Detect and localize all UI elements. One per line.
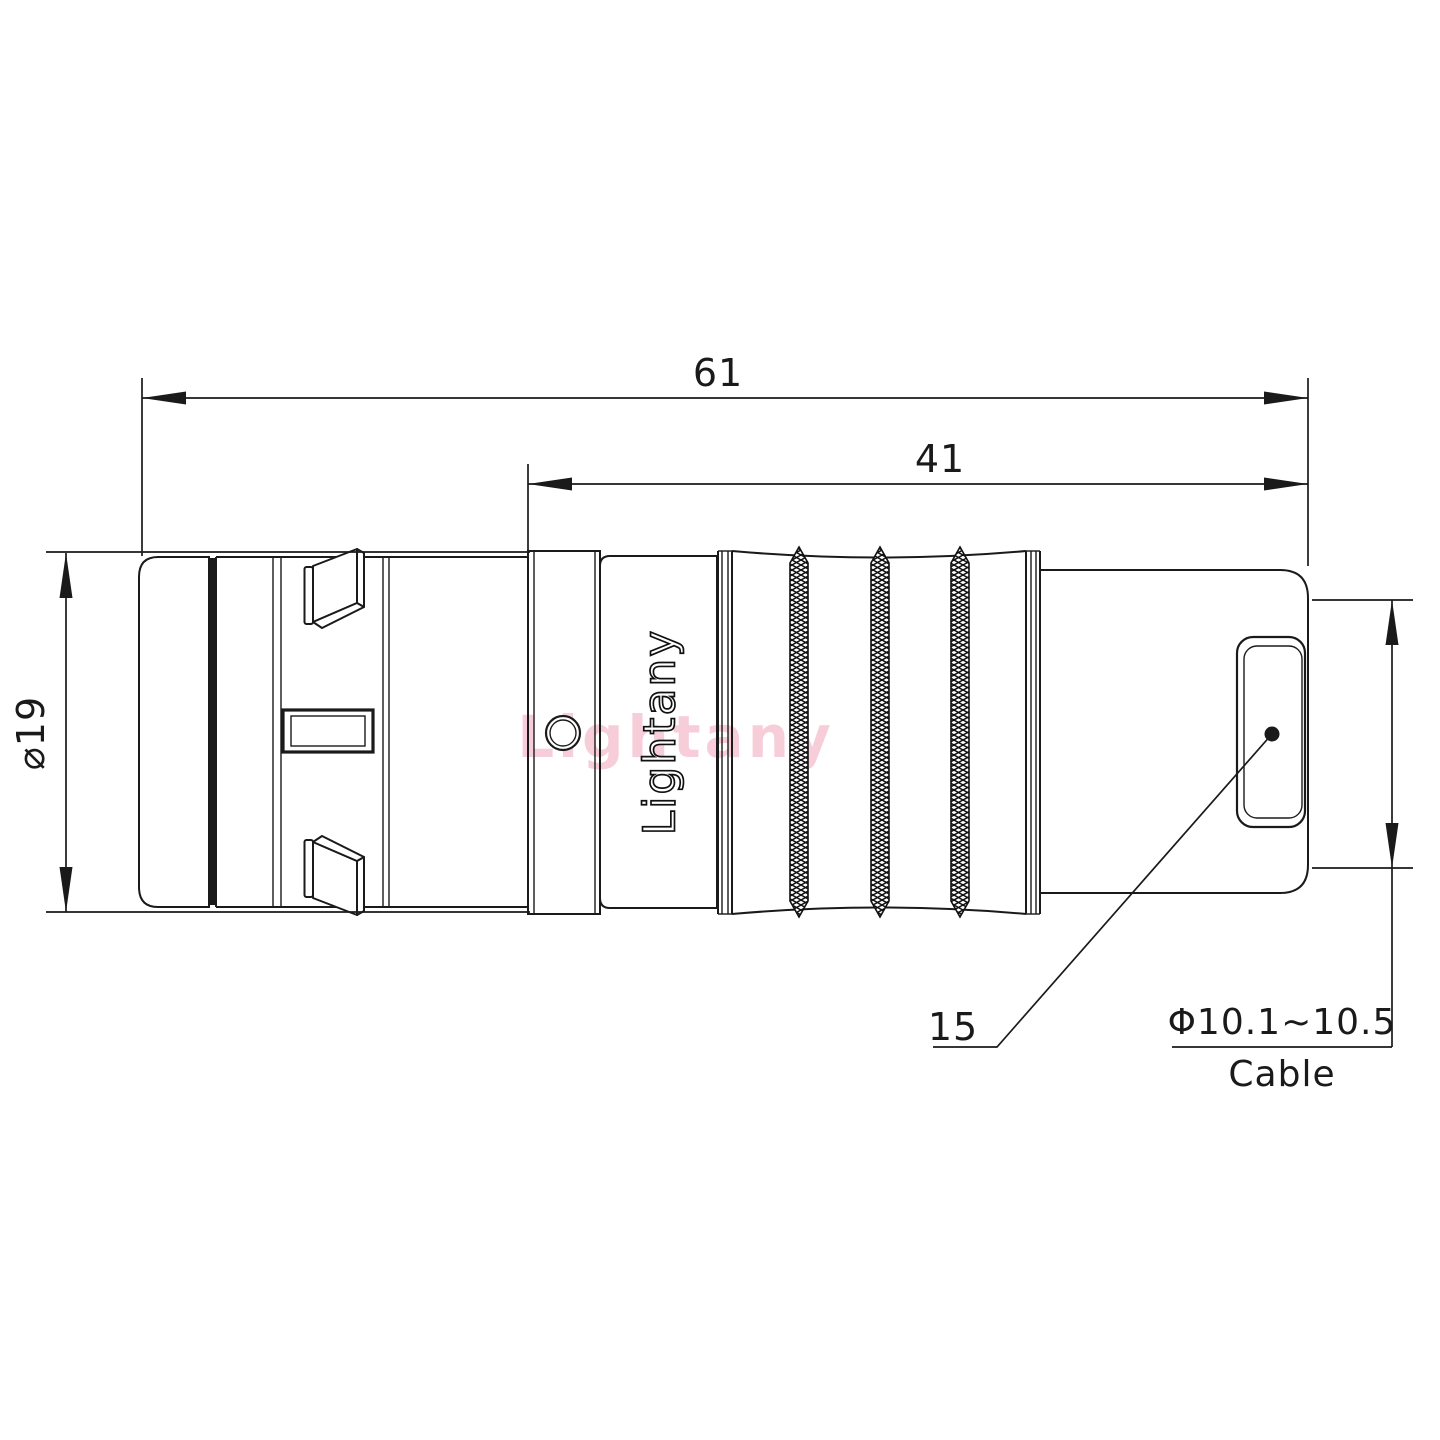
technical-drawing-svg: Lightany <box>0 0 1440 1440</box>
dim-label-61: 61 <box>693 351 743 395</box>
cable-range-label: Φ10.1~10.5 <box>1168 1002 1397 1043</box>
dim-label-dia19: ⌀19 <box>9 696 53 770</box>
cable-caption-label: Cable <box>1228 1054 1335 1095</box>
knurl-band <box>871 547 889 917</box>
brand-engraving-text: Lightany <box>634 629 685 836</box>
dim-label-15: 15 <box>928 1005 978 1049</box>
insulator-stripe <box>209 558 216 905</box>
dim-label-41: 41 <box>915 437 965 481</box>
knurl-band <box>790 547 808 917</box>
center-latch <box>283 710 373 752</box>
knurl-band <box>951 547 969 917</box>
drawing-canvas: Lightany <box>0 0 1440 1440</box>
vent-hole-inner <box>550 720 576 746</box>
